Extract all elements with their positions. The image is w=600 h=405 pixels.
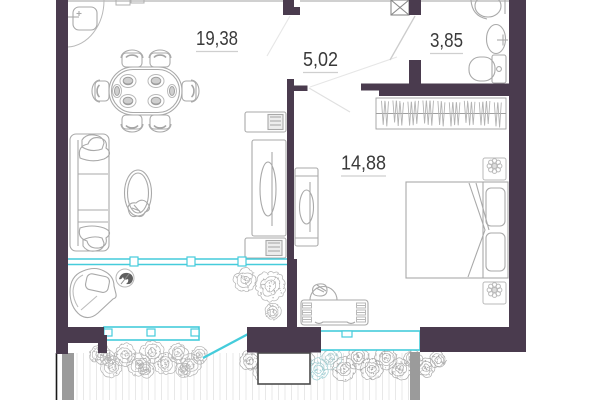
svg-text:19,38: 19,38 — [196, 27, 238, 50]
svg-text:5,02: 5,02 — [303, 48, 338, 71]
svg-text:3,85: 3,85 — [430, 29, 463, 52]
svg-text:14,88: 14,88 — [341, 152, 386, 175]
